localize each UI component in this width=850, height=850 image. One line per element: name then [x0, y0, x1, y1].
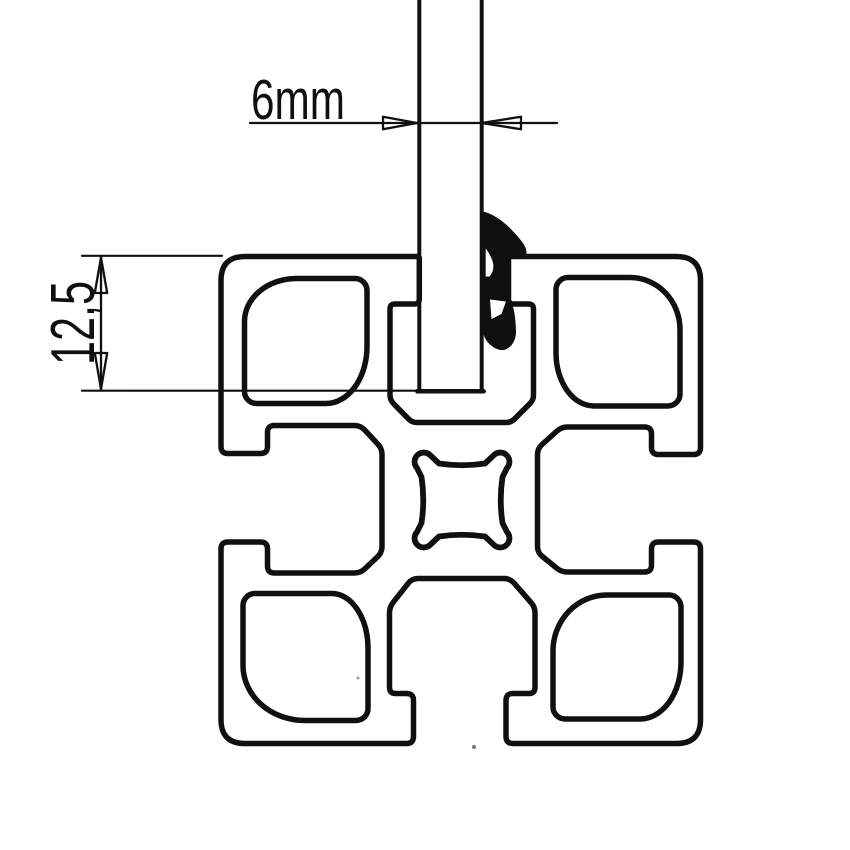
svg-text:6mm: 6mm	[251, 68, 345, 132]
svg-text:12,5: 12,5	[39, 281, 108, 365]
